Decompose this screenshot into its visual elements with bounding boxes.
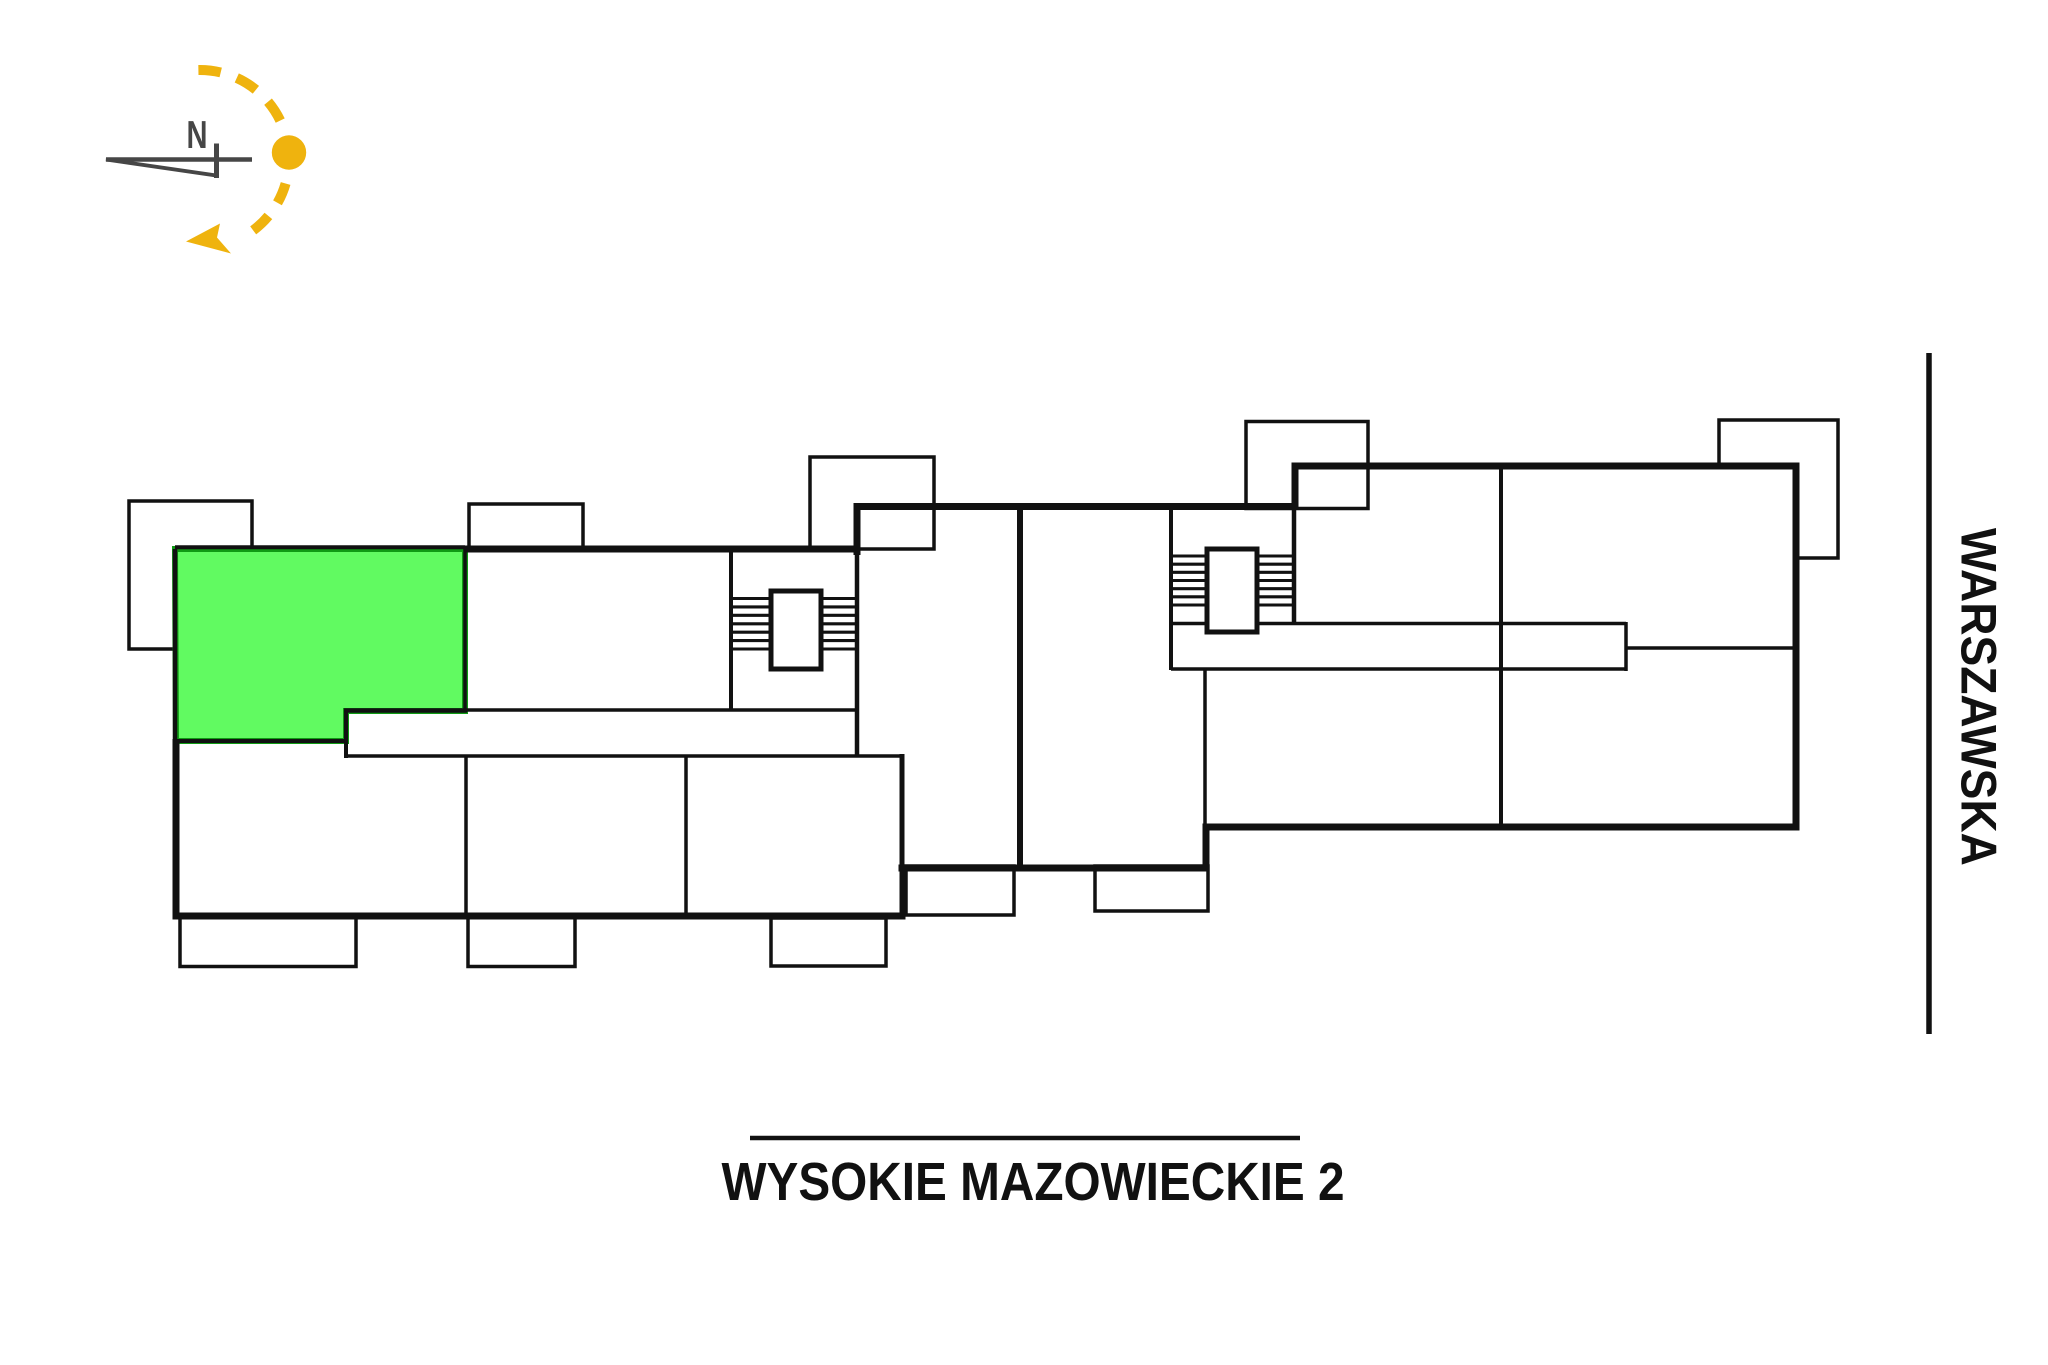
- svg-text:N: N: [187, 114, 208, 157]
- svg-text:WYSOKIE MAZOWIECKIE 2: WYSOKIE MAZOWIECKIE 2: [721, 1151, 1344, 1211]
- svg-text:WARSZAWSKA: WARSZAWSKA: [1950, 528, 2006, 866]
